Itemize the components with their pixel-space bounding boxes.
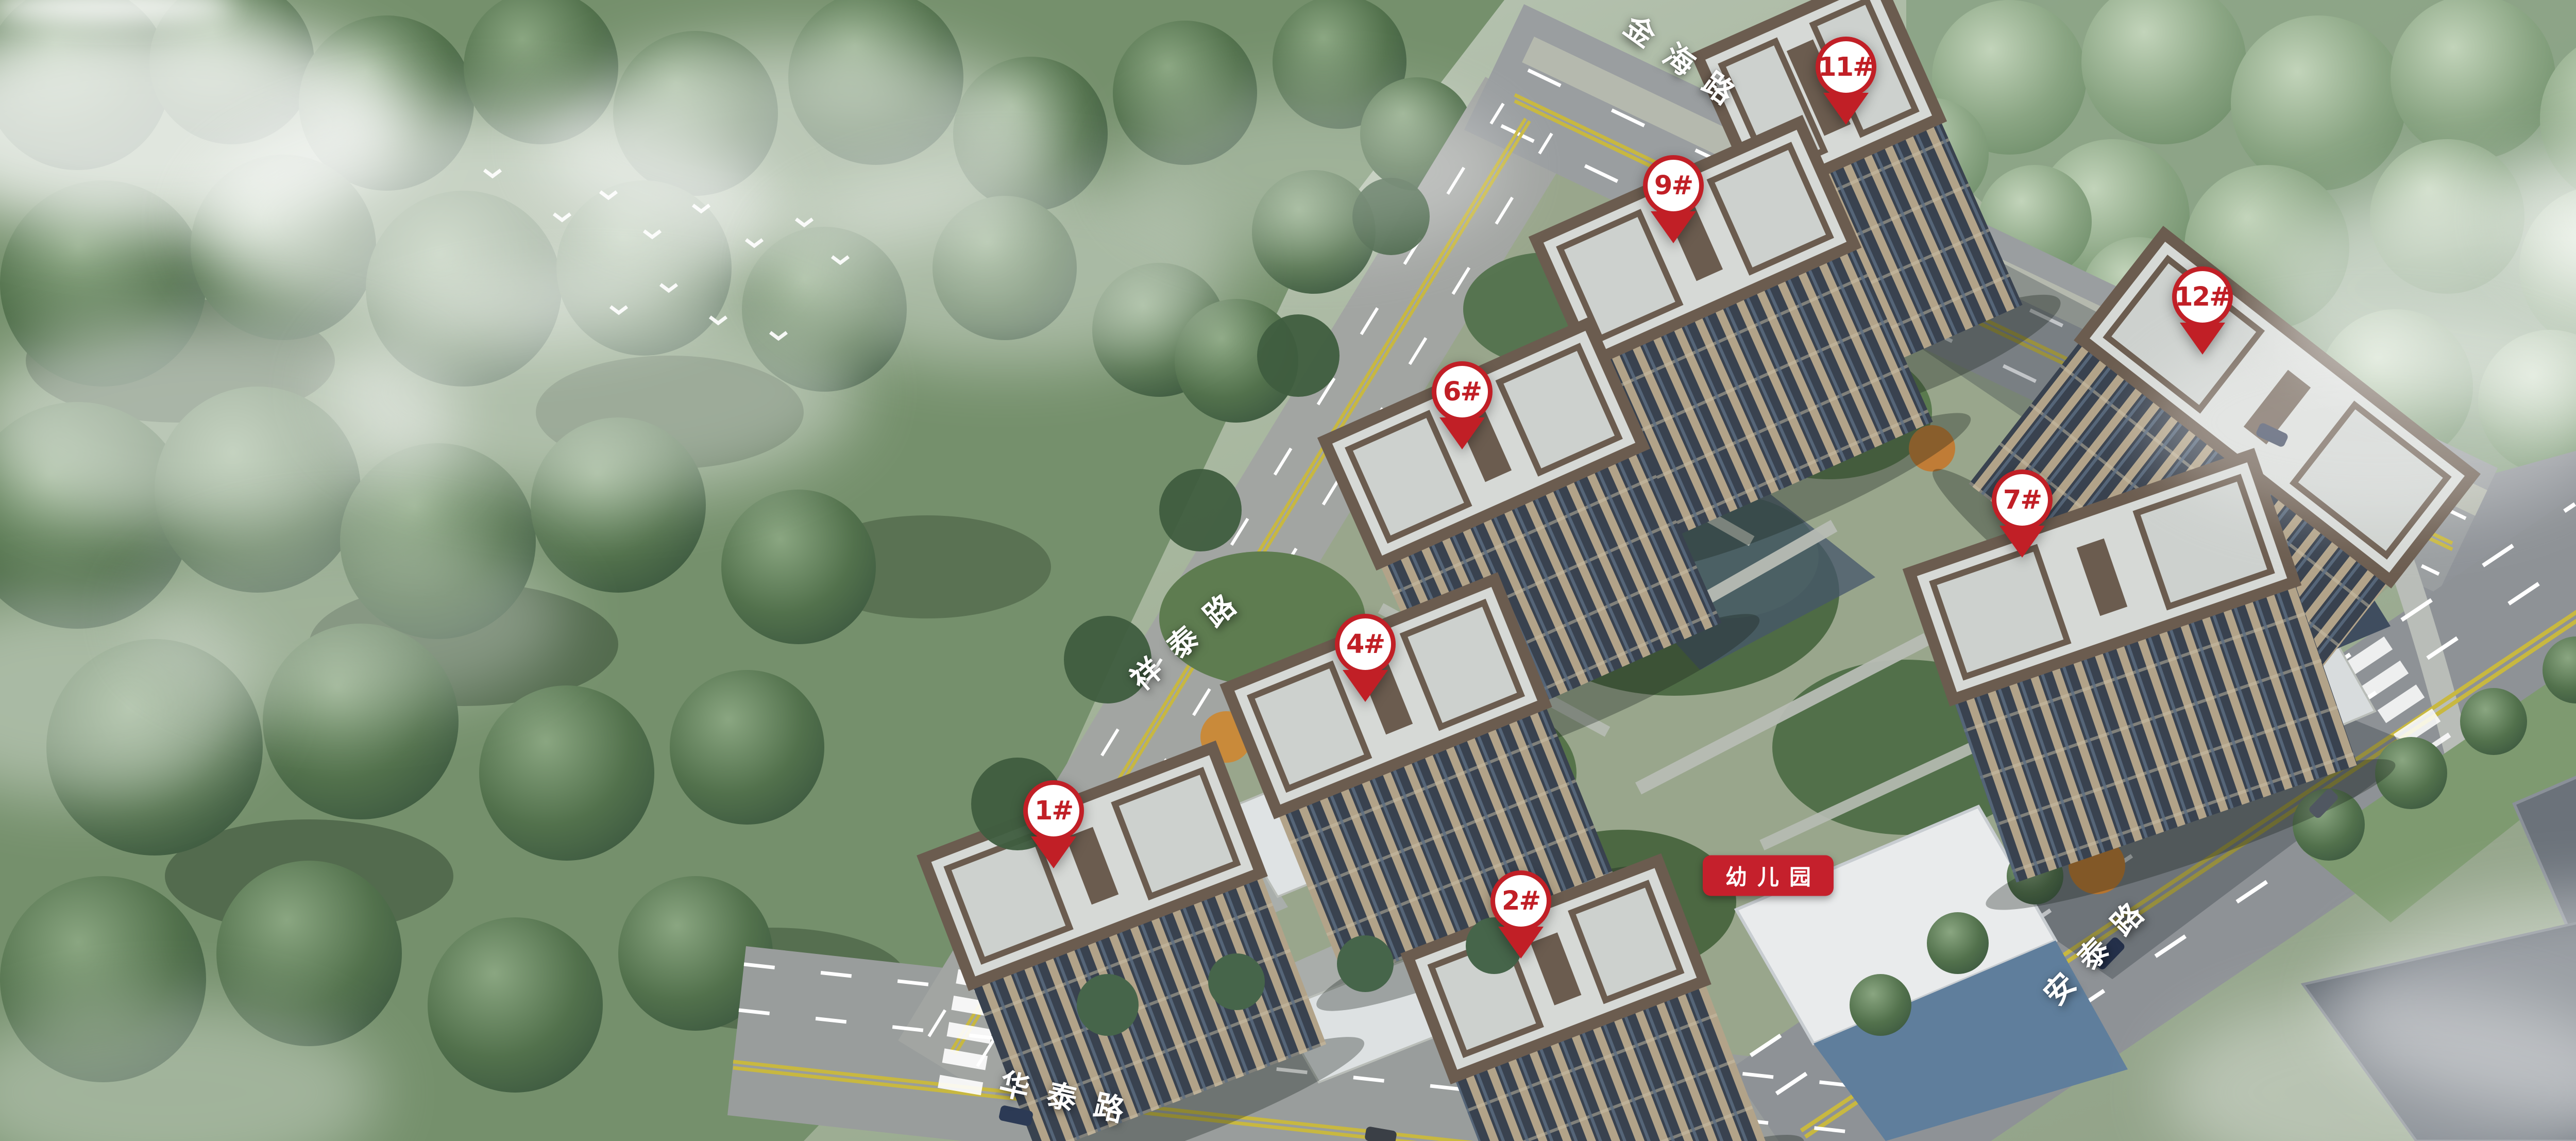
marker-label: 11# [1818,54,1874,80]
marker-circle: 12# [2172,266,2233,327]
building-marker-11[interactable]: 11# [1816,37,1876,125]
building-marker-4[interactable]: 4# [1335,614,1396,702]
building-marker-9[interactable]: 9# [1643,155,1704,243]
marker-circle: 6# [1432,361,1493,422]
marker-label: 7# [2003,487,2041,513]
marker-pin-tail-icon [1439,417,1485,449]
building-marker-1[interactable]: 1# [1023,780,1084,868]
marker-label: 2# [1502,888,1540,914]
marker-circle: 4# [1335,614,1396,675]
marker-label: 9# [1654,173,1692,199]
marker-circle: 11# [1816,37,1876,97]
marker-label: 4# [1346,631,1384,658]
marker-pin-tail-icon [1343,670,1388,702]
marker-circle: 9# [1643,155,1704,216]
building-marker-7[interactable]: 7# [1992,469,2053,558]
building-marker-2[interactable]: 2# [1490,870,1551,959]
marker-pin-tail-icon [1498,927,1544,959]
marker-label: 1# [1035,798,1073,824]
marker-pin-tail-icon [1651,211,1696,243]
marker-circle: 1# [1023,780,1084,841]
marker-pin-tail-icon [1999,526,2045,558]
building-marker-12[interactable]: 12# [2172,266,2233,355]
building-marker-6[interactable]: 6# [1432,361,1493,449]
marker-label: 12# [2175,284,2230,310]
kindergarten-badge: 幼儿园 [1703,855,1834,896]
aerial-site-plan: 金海路 祥泰路 华泰路 安泰路 幼儿园 鸟瞰图 1# 2# 4# 6# [0,0,2576,1141]
marker-circle: 2# [1490,870,1551,931]
marker-pin-tail-icon [1823,93,1869,125]
marker-pin-tail-icon [1031,836,1076,868]
aerial-render [0,0,2576,1141]
marker-circle: 7# [1992,469,2053,530]
marker-pin-tail-icon [2180,323,2225,355]
marker-label: 6# [1443,379,1481,405]
